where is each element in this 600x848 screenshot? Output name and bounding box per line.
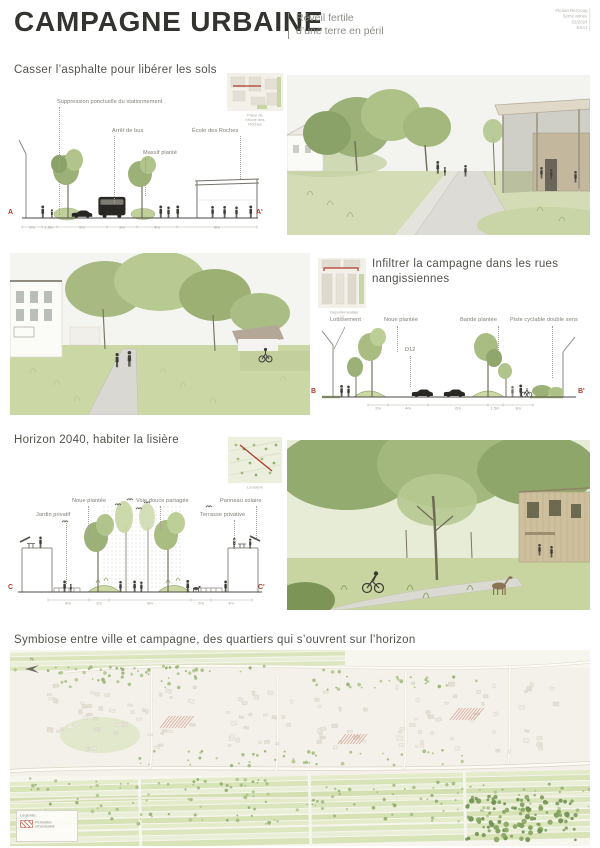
legend-title: Légende: xyxy=(20,813,47,816)
leader-line xyxy=(410,356,411,387)
house-edge-right xyxy=(563,337,575,397)
table-icon xyxy=(27,544,35,549)
poster: CAMPAGNE URBAINE Réveil fertile d’une te… xyxy=(0,0,600,848)
north-arrow-icon xyxy=(24,662,40,674)
solar-panel-icon xyxy=(250,536,260,541)
fence-icon xyxy=(196,588,222,592)
inset-map-departementale xyxy=(318,258,366,308)
label-noue-plantee-2: Noue plantée xyxy=(72,497,106,503)
label-jardin-privatif: Jardin privatif xyxy=(36,511,70,517)
leader-line xyxy=(256,506,257,538)
inset1-caption: Place de l’école des Roches xyxy=(241,113,269,127)
street-lamp-icon xyxy=(19,140,26,218)
noue-mound xyxy=(354,391,386,397)
credits-block: Florian Rezzoug 5ème année 03/2024 ESAJ xyxy=(555,8,590,31)
inset-map-lisiere xyxy=(228,437,282,483)
dim-label: 5m xyxy=(72,225,92,230)
table-icon xyxy=(238,544,246,548)
label-terrasse-privative: Terrasse privative xyxy=(200,511,245,517)
section-marker-c: C xyxy=(8,584,13,591)
label-voie-douce: Voie douce partagée xyxy=(136,497,189,503)
credit-school: ESAJ xyxy=(555,25,587,31)
leader-line xyxy=(498,326,499,350)
dim-label: 8m xyxy=(140,601,160,606)
section4-title: Symbiose entre ville et campagne, des qu… xyxy=(14,633,416,648)
dim-label: 4m xyxy=(398,406,418,411)
fence-icon xyxy=(54,588,80,592)
school-canopy-icon xyxy=(195,179,259,185)
page-title: CAMPAGNE URBAINE xyxy=(14,6,323,38)
label-piste-cyclable: Piste cyclable double sens xyxy=(510,316,578,322)
section-marker-c-prime: C' xyxy=(258,584,265,591)
label-d12: D12 xyxy=(405,346,415,352)
dim-label: 3m xyxy=(112,225,132,230)
label-lotissement: Lotissement xyxy=(330,316,361,322)
perspective-photo-lisiere xyxy=(287,440,590,610)
label-suppression-stationnement: Suppression ponctuelle du stationnement xyxy=(57,98,162,104)
perspective-photo-path xyxy=(10,253,310,415)
section-marker-a-prime: A' xyxy=(256,209,263,216)
leader-line xyxy=(66,520,67,584)
section3-title: Horizon 2040, habiter la lisière xyxy=(14,433,179,448)
perspective-photo-street xyxy=(287,75,590,235)
leader-line xyxy=(552,326,553,378)
leader-line xyxy=(88,506,89,540)
title-divider xyxy=(288,13,289,39)
dim-label: 1.5m xyxy=(485,406,505,411)
label-noue-plantee: Noue plantée xyxy=(384,316,418,322)
noue-mound xyxy=(88,586,120,593)
dim-label: 8m xyxy=(207,225,227,230)
dim-label: 1.5m xyxy=(39,225,59,230)
house-left xyxy=(22,548,52,592)
dog-icon xyxy=(193,586,201,592)
solar-panel-icon xyxy=(20,537,30,542)
dim-label: 2m xyxy=(368,406,388,411)
legend-hatch-swatch xyxy=(20,820,33,828)
label-panneau-solaire: Panneau solaire xyxy=(220,497,262,503)
label-massif-plante: Massif planté xyxy=(143,149,177,155)
leader-line xyxy=(234,520,235,548)
leader-line xyxy=(160,506,161,530)
section-marker-b: B xyxy=(311,388,316,395)
dim-label: 6m xyxy=(448,406,468,411)
label-arret-de-bus: Arrêt de bus xyxy=(112,127,143,133)
map-legend: Légende: Périmètre urbanisable xyxy=(16,810,78,842)
legend-item-perimetre: Périmètre urbanisable xyxy=(35,820,55,829)
leader-line xyxy=(240,136,241,179)
masterplan-map xyxy=(10,650,590,846)
inset-map-place-ecole xyxy=(227,73,283,111)
cross-section-a xyxy=(10,120,285,235)
north-label: N xyxy=(30,656,36,659)
page-subtitle: Réveil fertile d’une terre en péril xyxy=(296,12,384,38)
cross-section-b xyxy=(310,325,600,410)
house-edge-left xyxy=(322,331,333,397)
section2-title: Infiltrer la campagne dans les rues nang… xyxy=(372,257,577,287)
section-marker-a: A xyxy=(8,209,13,216)
dim-label: 4m xyxy=(221,601,241,606)
section1-title: Casser l’asphalte pour libérer les sols xyxy=(14,63,217,78)
dim-label: 4m xyxy=(147,225,167,230)
label-ecole-des-roches: École des Roches xyxy=(192,127,238,133)
leader-line xyxy=(397,326,398,352)
dim-label: 2m xyxy=(89,601,109,606)
noue-mound xyxy=(158,586,190,593)
house-right xyxy=(228,548,258,592)
subtitle-line-2: d’une terre en péril xyxy=(296,25,384,38)
subtitle-line-1: Réveil fertile xyxy=(296,12,384,25)
inset3-caption: La lisière xyxy=(242,485,269,490)
label-bande-plantee: Bande plantée xyxy=(460,316,497,322)
dim-label: 3m xyxy=(508,406,528,411)
leader-line xyxy=(145,158,146,196)
dim-label: 2m xyxy=(191,601,211,606)
section-marker-b-prime: B' xyxy=(578,388,585,395)
leader-line xyxy=(59,107,60,215)
dim-label: 4m xyxy=(58,601,78,606)
leader-line xyxy=(114,136,115,203)
north-indicator: N xyxy=(24,656,40,679)
